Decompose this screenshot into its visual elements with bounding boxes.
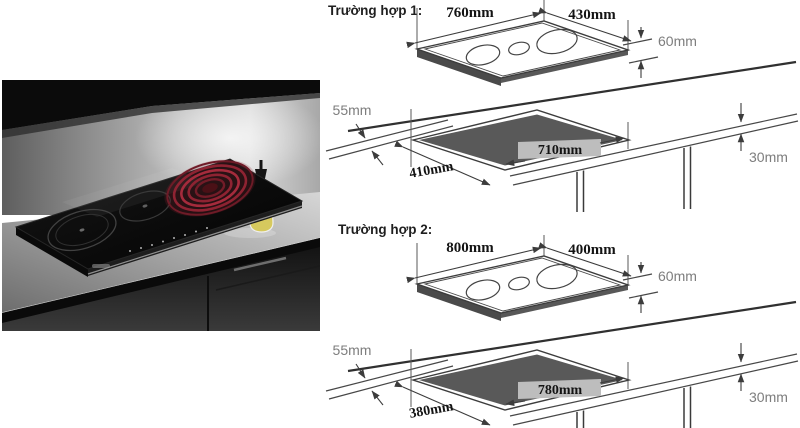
thickness-dimension: 30mm <box>749 149 788 165</box>
oil-bottle-spout <box>260 160 263 169</box>
counter-back-edge <box>348 302 796 371</box>
cutout-depth-dimension: 410mm <box>408 159 455 182</box>
depth-dimension: 430mm <box>568 7 616 23</box>
case-2-top-view: 800mm 400mm 60mm <box>415 235 697 321</box>
thickness-dimension: 30mm <box>749 389 788 405</box>
cutout-depth-dimension: 380mm <box>408 399 455 422</box>
width-dimension: 760mm <box>446 5 494 21</box>
installation-case-1: Trường hợp 1: 760mm 430mm <box>320 0 800 217</box>
front-clearance-dimension: 55mm <box>333 342 372 358</box>
case-1-label: Trường hợp 1: <box>328 3 422 18</box>
clearance-arrow-lower <box>372 151 383 165</box>
case-2-cutout-view: 55mm 380mm 780mm <box>326 302 798 428</box>
width-dimension: 800mm <box>446 240 494 256</box>
depth-dimension: 400mm <box>568 242 616 258</box>
case-1-top-view: 760mm 430mm 60mm <box>415 0 697 86</box>
height-dimension: 60mm <box>658 33 697 49</box>
clearance-arrow-upper <box>356 124 365 138</box>
brand-logo <box>92 264 110 268</box>
case-1-cutout-view: 55mm 410mm 710mm <box>326 62 798 212</box>
case-2-label: Trường hợp 2: <box>338 222 432 237</box>
installation-case-2: Trường hợp 2: 800mm 400mm <box>320 218 800 428</box>
clearance-arrow-lower <box>372 391 383 405</box>
cutout-width-dimension: 780mm <box>538 383 583 398</box>
front-clearance-dimension: 55mm <box>333 102 372 118</box>
cutout-width-dimension: 710mm <box>538 143 583 158</box>
clearance-arrow-upper <box>356 364 365 378</box>
counter-back-edge <box>348 62 796 131</box>
height-dimension: 60mm <box>658 268 697 284</box>
page: Trường hợp 1: 760mm 430mm <box>0 0 800 428</box>
product-photo-image <box>2 80 320 331</box>
product-photo <box>2 80 320 331</box>
